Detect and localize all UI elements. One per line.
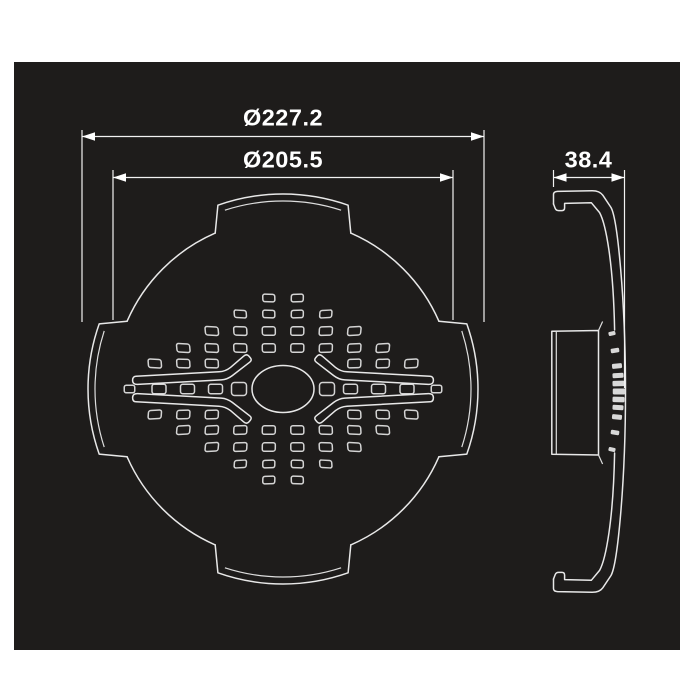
slot-edge-mark <box>612 414 622 420</box>
dimension-label-depth: 38.4 <box>565 147 613 173</box>
slot-edge-mark <box>612 381 624 387</box>
dimension-label-inner-diameter: Ø205.5 <box>243 147 323 173</box>
slot-edge-mark <box>612 373 623 379</box>
slot-edge-mark <box>612 397 624 403</box>
page-background: Ø227.2 Ø205.5 38.4 <box>0 0 700 700</box>
technical-drawing: Ø227.2 Ø205.5 38.4 <box>0 0 700 700</box>
slot-edge-mark <box>612 363 622 369</box>
slot-edge-mark <box>613 389 626 395</box>
dimension-label-outer-diameter: Ø227.2 <box>243 105 323 131</box>
slot-edge-mark <box>612 405 623 411</box>
